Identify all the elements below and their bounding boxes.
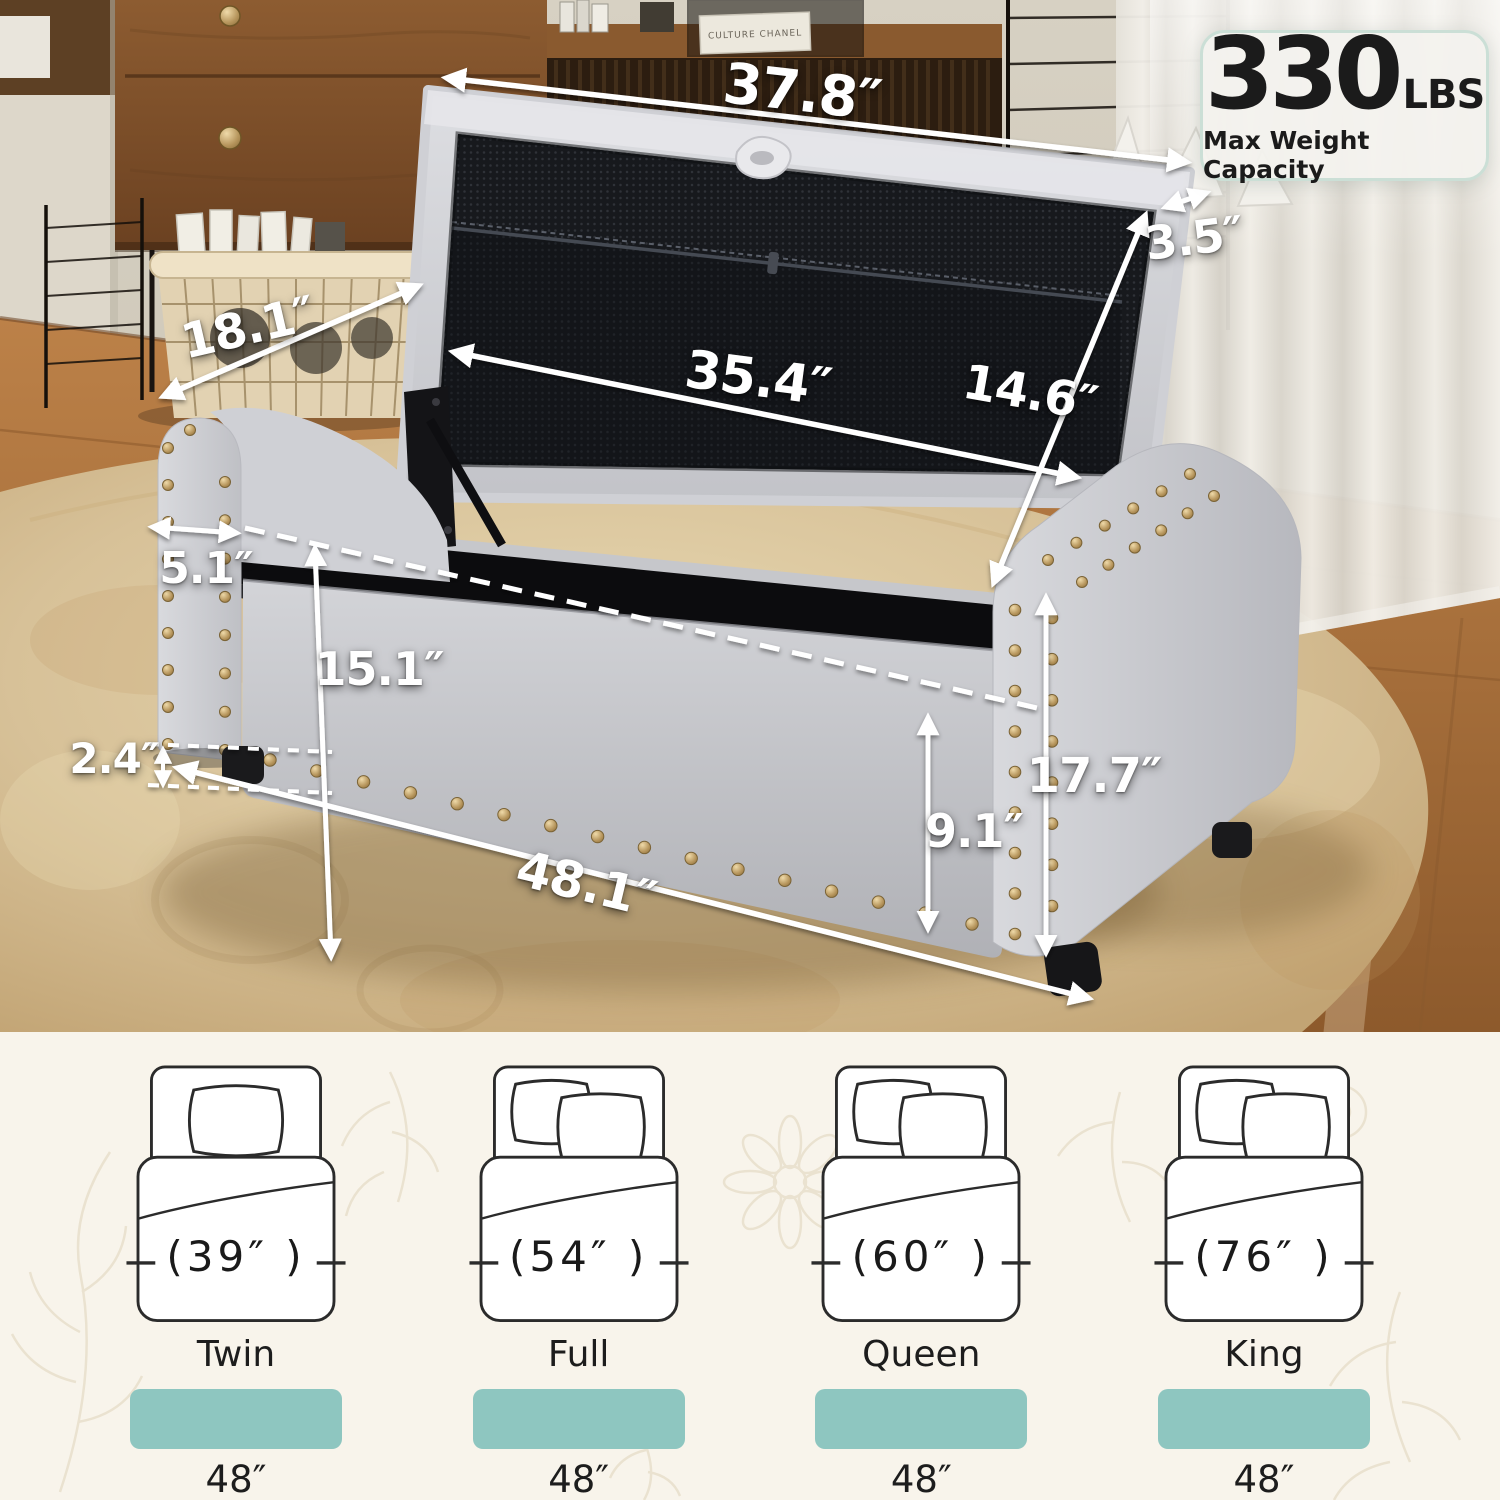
- mattress-width-label: (54″ ): [465, 1235, 693, 1279]
- mattress-width-label: (60″ ): [807, 1235, 1035, 1279]
- bed-diagram-twin: [122, 1065, 350, 1324]
- ottoman-width-bar: [815, 1389, 1027, 1449]
- ottoman-width-label: 48″: [891, 1460, 952, 1500]
- bed-size-name: Twin: [197, 1333, 275, 1377]
- dim-label-lid-thickness: 3.5″: [1143, 209, 1246, 267]
- ottoman-width-bar: [473, 1389, 685, 1449]
- size-guide: (39″ ) Twin 48″ (54″: [0, 1032, 1500, 1500]
- pillow-icon: [558, 1094, 644, 1161]
- drawer-knob: [220, 6, 240, 26]
- dim-label-front-height: 9.1″: [925, 808, 1023, 854]
- bed-diagram-full: [465, 1065, 693, 1324]
- drawer-knob: [219, 127, 241, 149]
- bed-size-name: Full: [548, 1333, 610, 1377]
- pillow-icon: [900, 1094, 986, 1161]
- weight-caption: Max Weight Capacity: [1203, 126, 1486, 184]
- bed-diagram-king: [1150, 1065, 1378, 1324]
- dim-label-arm-width: 5.1″: [159, 547, 253, 591]
- ottoman-width-label: 48″: [1234, 1460, 1295, 1500]
- ottoman-width-label: 48″: [206, 1460, 267, 1500]
- size-grid: (39″ ) Twin 48″ (54″: [0, 1032, 1500, 1500]
- mattress-width-label: (39″ ): [122, 1235, 350, 1279]
- ottoman-width-bar: [1158, 1389, 1370, 1449]
- bed-size-name: King: [1224, 1333, 1303, 1377]
- pillow-icon: [1243, 1094, 1329, 1161]
- size-option-full: (54″ ) Full 48″: [465, 1065, 693, 1500]
- bed-size-name: Queen: [862, 1333, 980, 1377]
- mattress-width-label: (76″ ): [1150, 1235, 1378, 1279]
- dim-label-leg-height: 2.4″: [69, 738, 158, 780]
- dim-label-total-height: 17.7″: [1027, 752, 1162, 800]
- bed-diagram-queen: [807, 1065, 1035, 1324]
- nailhead-trim-left-arm: [163, 443, 174, 750]
- weight-unit: LBS: [1402, 72, 1484, 118]
- ottoman-width-bar: [130, 1389, 342, 1449]
- ottoman-width-label: 48″: [548, 1460, 609, 1500]
- max-weight-badge: 330 LBS Max Weight Capacity: [1200, 30, 1489, 181]
- weight-value: 330: [1205, 28, 1399, 120]
- size-option-queen: (60″ ) Queen 48″: [807, 1065, 1035, 1500]
- dim-label-inner-height: 15.1″: [314, 646, 443, 692]
- product-infographic: CULTURE CHANEL: [0, 0, 1500, 1500]
- nailhead-trim-right-arm: [1009, 604, 1021, 940]
- product-photo: CULTURE CHANEL: [0, 0, 1500, 1032]
- pillow-icon: [189, 1086, 282, 1156]
- size-option-king: (76″ ) King 48″: [1150, 1065, 1378, 1500]
- size-option-twin: (39″ ) Twin 48″: [122, 1065, 350, 1500]
